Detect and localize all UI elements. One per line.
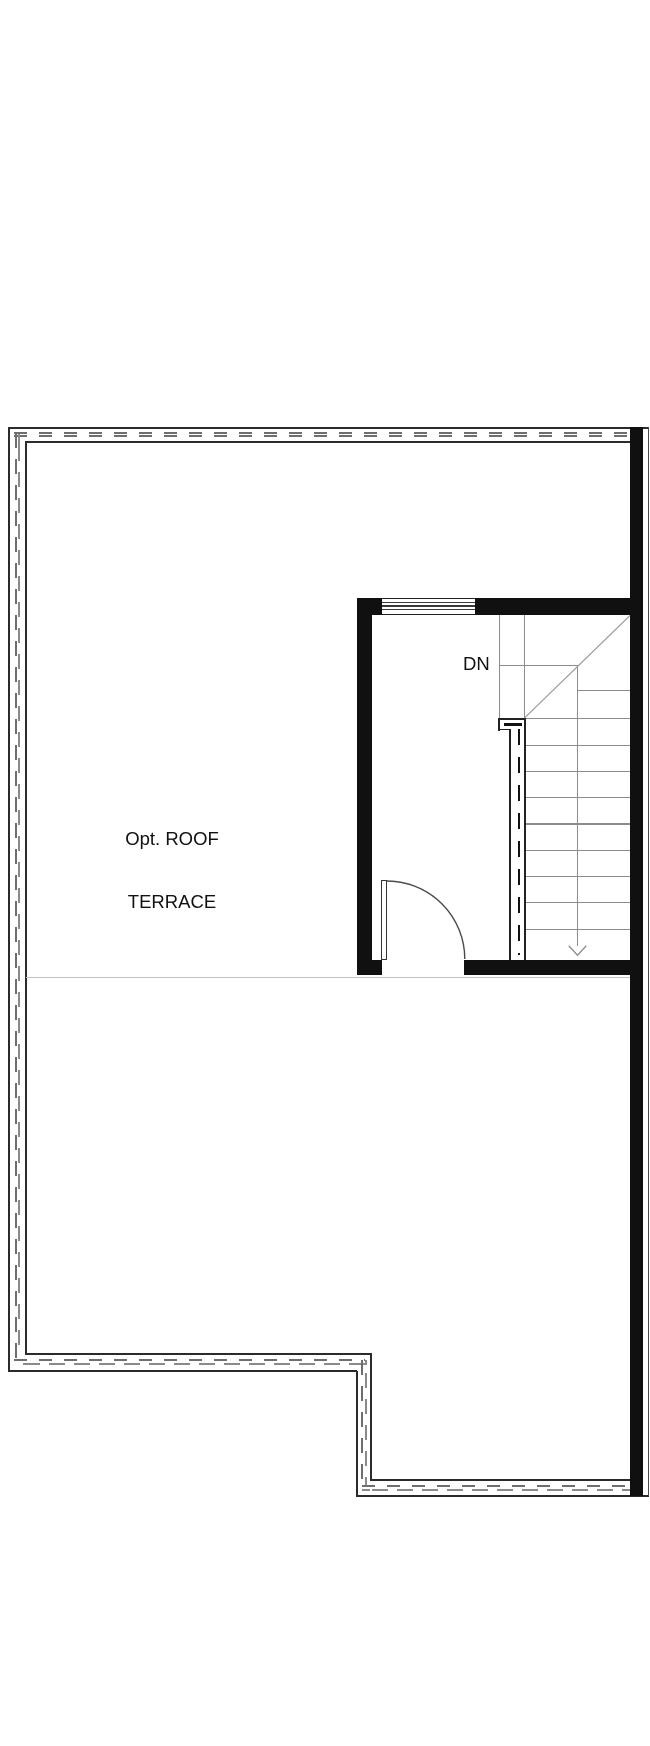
stair-winder-line-right: [577, 690, 630, 691]
stair-upper-flight-right-line: [524, 615, 525, 719]
rail-inner-line: [524, 718, 526, 960]
parapet-notch-dash-col-2: [365, 1360, 367, 1487]
stair-tread-line: [526, 902, 630, 903]
stair-window: [382, 598, 475, 615]
roof-edge-faint-line: [26, 977, 642, 978]
stair-tread-line: [526, 850, 630, 851]
window-glazing-line: [382, 602, 475, 603]
parapet-bottom-right-dash-row-1: [362, 1485, 630, 1487]
parapet-bottom-right-outer-line: [356, 1495, 649, 1497]
parapet-top-inner-line: [25, 441, 630, 443]
parapet-bottom-left-dash-row-1: [14, 1359, 365, 1361]
roof-terrace-label-line2: TERRACE: [76, 891, 268, 912]
parapet-top-dash-row-2: [14, 435, 630, 437]
floorplan-page: DN Opt. ROOF TERRACE: [0, 0, 650, 1746]
party-wall-right: [630, 427, 643, 1496]
stair-dn-label: DN: [463, 653, 490, 674]
roof-terrace-label: Opt. ROOF TERRACE: [76, 786, 268, 954]
parapet-bottom-right-dash-row-2: [362, 1489, 630, 1492]
parapet-notch-outer-line: [356, 1371, 358, 1497]
door-leaf: [381, 880, 387, 960]
stair-tread-line: [526, 771, 630, 772]
roof-terrace-label-line1: Opt. ROOF: [76, 828, 268, 849]
parapet-bottom-right-inner-line: [371, 1479, 630, 1481]
stair-top-wall-right-segment: [475, 598, 631, 615]
stair-left-wall: [357, 598, 372, 975]
stair-landing-line: [524, 718, 630, 719]
right-edge-line: [648, 427, 649, 1496]
parapet-bottom-left-outer-line: [8, 1370, 357, 1372]
stair-tread-line: [526, 876, 630, 877]
door-swing-arc: [387, 881, 465, 959]
parapet-left-dash-col-1: [15, 433, 17, 1358]
rail-cap-top-line: [498, 718, 526, 720]
parapet-top-outer-line: [8, 427, 649, 429]
stair-bottom-wall-right-segment: [464, 960, 631, 975]
stair-tread-line: [526, 797, 630, 798]
parapet-left-dash-col-2: [18, 433, 20, 1355]
parapet-left-inner-line: [25, 441, 27, 1355]
stair-bottom-wall-hinge-segment: [357, 960, 382, 975]
stair-tread-line: [526, 929, 630, 930]
window-glazing-line: [382, 609, 475, 610]
stair-upper-flight-left-line: [499, 615, 500, 719]
parapet-top-dash-row-1: [14, 432, 630, 434]
parapet-notch-dash-col-1: [361, 1360, 363, 1489]
stair-direction-line: [577, 666, 578, 946]
stair-tread-line: [526, 823, 630, 824]
stair-tread-line: [526, 745, 630, 746]
stair-down-arrowhead: [569, 946, 586, 955]
rail-outer-line: [509, 729, 511, 960]
parapet-bottom-left-dash-row-2: [14, 1363, 365, 1366]
window-glazing-line: [382, 605, 475, 606]
handrail-dash-start: [504, 723, 522, 726]
handrail-dashed-line: [518, 729, 521, 955]
parapet-bottom-left-inner-line: [25, 1353, 372, 1355]
stair-winder-line-left: [499, 665, 578, 666]
parapet-notch-inner-line: [370, 1354, 372, 1481]
parapet-left-outer-line: [8, 427, 10, 1371]
